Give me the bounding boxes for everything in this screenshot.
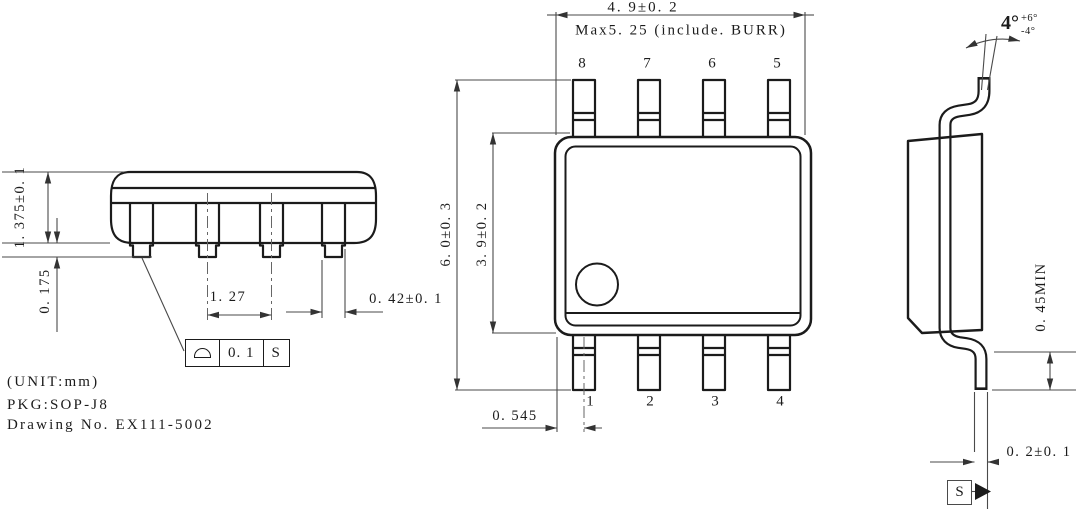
package-drawing-canvas: 1. 375±0. 1 0. 175 1. 27 0. 42±0. 1 0. 1… [0,0,1080,509]
angle-minus-tolerance: -4° [1021,26,1038,39]
package-name: PKG:SOP-J8 [7,398,109,413]
top-view-body [555,137,811,335]
front-view-dimension-lines [2,172,383,351]
tolerance-frame: 0. 1 S [185,339,290,367]
tolerance-value: 0. 1 [219,340,263,366]
front-view-body [111,172,376,257]
top-view-pins [573,80,790,390]
side-view-lead [945,77,984,390]
angle-plus-tolerance: +6° [1021,13,1038,26]
unit-note: (UNIT:mm) [7,375,99,390]
dim-body-length-label: 3. 9±0. 2 [475,202,490,267]
dim-standoff-label: 0. 175 [38,268,53,313]
dim-edge-to-pin1-label: 0. 545 [492,409,537,424]
dim-body-width-label: 4. 9±0. 2 [607,1,678,16]
profile-of-surface-icon [194,348,211,358]
dim-lead-thickness-label: 0. 2±0. 1 [1007,445,1072,460]
datum-s-label: S [955,485,963,500]
dim-lead-width-label: 0. 42±0. 1 [369,292,443,307]
tolerance-datum: S [263,340,289,366]
datum-s-triangle [975,483,991,500]
top-view-dimension-lines [455,12,814,432]
datum-s-box: S [947,480,972,505]
angle-tolerance: +6° -4° [1021,13,1038,38]
dim-body-height-label: 1. 375±0. 1 [13,166,28,248]
pin1-indicator-circle [576,264,618,306]
angle-base-value: 4° [1001,13,1019,33]
dim-lead-length-min-label: 0. 45MIN [1034,262,1049,331]
pin-label-4: 4 [776,395,784,410]
pin-label-6: 6 [708,57,716,72]
profile-of-surface-symbol-cell [186,340,219,366]
pin-label-8: 8 [578,57,586,72]
pin-label-1: 1 [586,395,594,410]
pin-label-2: 2 [646,395,654,410]
dim-lead-pitch-label: 1. 27 [210,290,247,305]
pin-label-5: 5 [773,57,781,72]
dim-lead-angle-label: 4° +6° -4° [1001,13,1038,38]
side-view-dimension-lines [930,34,1076,509]
pin-label-7: 7 [643,57,651,72]
pin-label-3: 3 [711,395,719,410]
dim-max-width-label: Max5. 25 (include. BURR) [575,24,787,39]
drawing-number: Drawing No. EX111-5002 [7,418,214,433]
dim-overall-length-label: 6. 0±0. 3 [439,202,454,267]
